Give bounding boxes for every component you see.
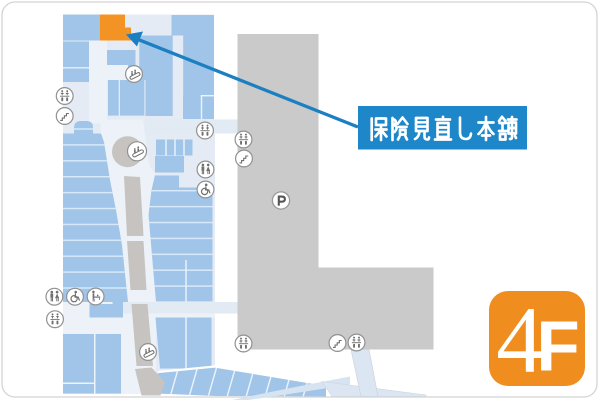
svg-text:F: F [536,308,579,387]
